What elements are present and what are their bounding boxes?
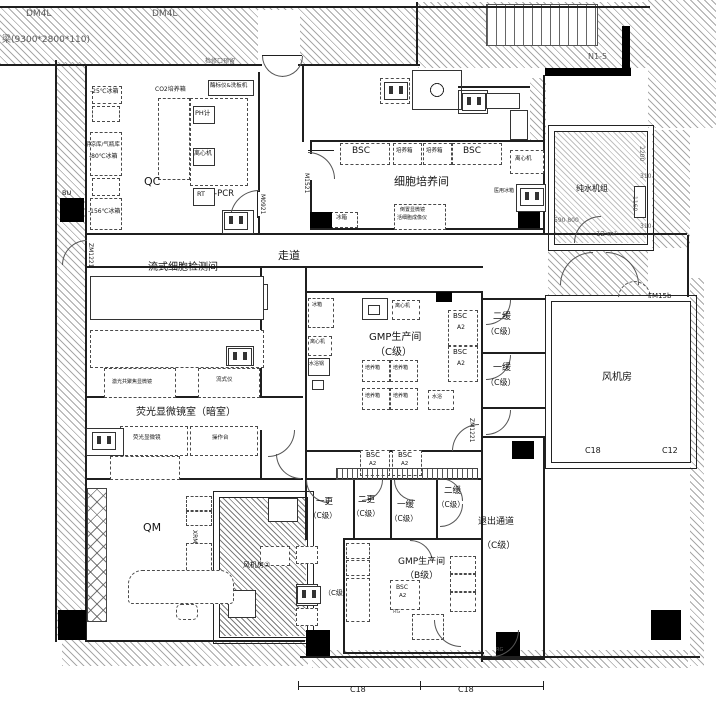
label-grid-c18-c: C18	[458, 686, 474, 694]
label-dim-dm4l-1: DM4L	[26, 10, 51, 19]
label-eq-waterbath-1: 水浴	[432, 395, 442, 400]
door-swing	[308, 152, 335, 179]
label-eq-fridge-2: 冰箱	[312, 303, 322, 308]
label-room-gmp-c: GMP生产间	[369, 333, 421, 343]
wall-segment	[436, 480, 438, 538]
equipment-box	[346, 560, 370, 576]
label-eq-bsc-2: BSC	[463, 147, 481, 156]
label-door-m0921: M0921	[259, 194, 265, 214]
door-swing	[394, 480, 415, 501]
wall-segment	[458, 86, 530, 88]
equipment-box	[92, 178, 120, 196]
equipment-box	[450, 556, 476, 574]
label-door-zm1221-right: ZM1221	[468, 418, 474, 443]
fixture-box	[312, 380, 324, 390]
label-eq-centrifuge-3: 离心机	[395, 304, 410, 309]
structural-column	[651, 610, 681, 640]
door-swing	[262, 56, 283, 77]
label-grid-c12: C12	[662, 447, 678, 455]
label-eq-live-cell: 活细胞成像仪	[397, 216, 427, 221]
label-label-xrm: XRM	[191, 530, 197, 543]
equipment-box	[346, 543, 370, 559]
label-dim-area: 12 m²	[596, 231, 617, 238]
wall-segment	[260, 430, 262, 480]
office-desk	[128, 570, 234, 604]
label-eq-bsc-6: BSC	[366, 452, 380, 459]
label-door-zm1221-left: ZM1221	[87, 243, 93, 268]
label-eq-incubator-5: 培养箱	[365, 394, 380, 399]
wall-segment	[300, 656, 700, 658]
label-eq-bsc-3-a2: A2	[457, 325, 465, 331]
label-eq-incubator-1: 培养箱	[396, 149, 413, 155]
label-room-water-unit: 纯水机组	[576, 185, 608, 193]
wall-segment	[302, 66, 304, 142]
label-eq-fridge-1: 冰箱	[336, 216, 347, 222]
label-room-change2-grade: （C级）	[352, 510, 380, 518]
wall-segment	[298, 681, 299, 690]
structural-column	[622, 26, 630, 76]
label-eq-bsc-5-a2: A2	[399, 594, 406, 600]
label-room-qc: QC	[144, 176, 160, 187]
label-stair-n1-5: N1-5	[588, 53, 607, 61]
label-eq-bsc-4: BSC	[453, 349, 467, 356]
wall-segment	[483, 658, 545, 660]
storage-rack	[87, 488, 107, 622]
label-col-bu: BU	[62, 190, 71, 197]
label-dim-310-a: 310	[640, 174, 651, 180]
label-eq-incubator-3: 培养箱	[365, 366, 380, 371]
wall-segment	[483, 352, 545, 354]
wall-segment	[55, 60, 57, 642]
label-room-airlock2: 二缓	[444, 487, 461, 496]
label-note-access: 检修口预留	[205, 59, 235, 65]
label-door-m1521: M1521	[303, 173, 309, 193]
fixture-box	[90, 276, 264, 320]
equipment-box	[186, 511, 212, 526]
label-eq-flow-cytometer: 流式仪	[216, 378, 233, 384]
equipment-box	[296, 608, 318, 626]
label-room-c-grade-b: （C级）	[324, 590, 350, 597]
structural-column	[518, 212, 540, 228]
label-dim-2200: 2200	[638, 146, 644, 161]
air-grille	[336, 468, 478, 480]
label-door-fm15b: FM15b	[648, 293, 671, 300]
staircase	[486, 4, 598, 46]
label-room-airlock2-grade: （C级）	[437, 501, 465, 509]
label-eq-pcr: -PCR	[214, 190, 234, 199]
label-dim-beam: 梁(9300*2800*110)	[2, 36, 90, 45]
label-dim-310-b: 310	[640, 224, 651, 230]
label-room-buffer1: 一缓	[493, 364, 511, 373]
equipment-box	[110, 456, 180, 480]
office-chair	[176, 604, 198, 620]
wall-segment	[416, 2, 418, 64]
wall-segment	[343, 652, 484, 654]
label-corridor: 走道	[278, 250, 300, 261]
label-room-buffer2: 二缓	[493, 313, 511, 322]
equipment-box	[186, 496, 212, 511]
wall-segment	[483, 436, 545, 438]
label-eq-bsc-7: BSC	[398, 452, 412, 459]
wall-segment	[298, 64, 420, 66]
label-room-fan-2: 风机房②	[243, 562, 270, 569]
equipment-box	[362, 388, 390, 410]
wall-segment	[543, 681, 544, 690]
equipment-box	[296, 546, 318, 564]
fixture-box	[510, 110, 528, 140]
wall-hatch	[55, 62, 85, 470]
door-swing	[486, 410, 511, 435]
label-dim-dm4l-2: DM4L	[152, 10, 177, 19]
label-room-buffer2-grade: （C级）	[486, 328, 516, 336]
label-room-fluorescence: 荧光显微镜室（暗室）	[136, 408, 236, 418]
label-room-change1: 一更	[316, 498, 333, 507]
label-room-qm: QM	[143, 522, 161, 533]
ceiling-diffuser	[412, 70, 462, 110]
structural-column	[60, 198, 84, 222]
wall-hatch	[648, 0, 716, 128]
label-eq-bsc-1: BSC	[352, 147, 370, 156]
label-room-airlock1-grade: （C级）	[390, 515, 418, 523]
door-swing	[268, 430, 295, 457]
label-eq-incubator-6: 培养箱	[393, 394, 408, 399]
wall-segment	[310, 140, 545, 142]
wall-segment	[481, 291, 483, 662]
label-eq-ph: PH计	[195, 110, 210, 117]
structural-column	[306, 630, 330, 656]
door-swing	[276, 454, 301, 479]
fixture-box	[268, 498, 298, 522]
label-eq-coolroom: 阴凉库/气瓶库	[85, 143, 120, 149]
label-grid-c18-a: C18	[585, 447, 601, 455]
sink-icon	[384, 82, 408, 100]
sink-icon	[520, 188, 544, 206]
wall-segment	[305, 291, 307, 452]
wall-segment	[0, 6, 650, 8]
label-room-gmp-b-grade: （B级）	[405, 572, 438, 581]
wall-segment	[483, 407, 545, 409]
wall-segment	[543, 438, 545, 660]
label-mark-rg-2: RG	[496, 648, 503, 653]
label-eq-f25: -25℃冰箱	[90, 89, 119, 95]
label-room-cell-culture: 细胞培养间	[394, 176, 449, 187]
structural-column	[310, 212, 332, 228]
wall-segment	[390, 480, 392, 538]
label-eq-plate-reader: 酶标仪&洗板机	[210, 84, 247, 90]
sink-icon	[462, 93, 486, 111]
label-room-gmp-c-grade: （C级）	[375, 348, 412, 358]
label-room-exit-corridor: 退出通道	[478, 518, 514, 527]
label-eq-f156: -156℃冰箱	[88, 209, 120, 215]
wall-segment	[308, 150, 334, 151]
equipment-box	[92, 106, 120, 122]
wall-segment	[85, 266, 483, 268]
wall-segment	[687, 235, 689, 297]
label-mark-rg-1: RG	[393, 610, 400, 615]
label-room-exit-grade: （C级）	[482, 542, 515, 551]
label-eq-centrifuge-1: 离心机	[194, 151, 212, 157]
equipment-box	[362, 360, 390, 382]
label-grid-c18-b: C18	[350, 686, 366, 694]
label-eq-confocal: 激光共聚焦显微镜	[112, 380, 152, 385]
fixture-box	[368, 305, 380, 315]
label-eq-f80: -80℃冰箱	[89, 154, 118, 160]
label-eq-centrifuge-4: 离心机	[310, 340, 325, 345]
structural-column	[545, 68, 631, 76]
label-eq-rt: RT	[197, 191, 205, 198]
equipment-box	[450, 592, 476, 612]
label-eq-co2: CO2培养箱	[155, 87, 186, 93]
label-eq-fluor-scope: 荧光显微镜	[133, 436, 161, 442]
sink-icon	[224, 212, 248, 230]
label-room-change1-grade: （C级）	[309, 512, 337, 520]
door-swing	[282, 56, 303, 77]
equipment-box	[428, 390, 454, 410]
wall-segment	[258, 72, 260, 192]
equipment-box	[390, 360, 418, 382]
label-room-buffer1-grade: （C级）	[486, 379, 516, 387]
label-room-gmp-b: GMP生产间	[398, 558, 445, 567]
label-room-airlock1: 一缓	[397, 501, 414, 510]
label-eq-bsc-3: BSC	[453, 313, 467, 320]
label-eq-bsc-4-a2: A2	[457, 361, 465, 367]
wall-hatch	[652, 130, 690, 248]
label-eq-bsc-7-a2: A2	[401, 462, 408, 468]
equipment-box	[390, 388, 418, 410]
structural-column	[58, 610, 86, 640]
label-room-change2: 二更	[358, 496, 375, 505]
sink-icon	[297, 586, 321, 604]
label-dim-590-800: 590 800	[554, 218, 579, 224]
label-eq-incubator-4: 培养箱	[393, 366, 408, 371]
label-eq-med-fridge: 医用冰箱	[494, 189, 514, 194]
fixture-box	[486, 93, 520, 109]
label-dim-1160: 1160	[631, 196, 637, 211]
door-swing	[434, 620, 461, 647]
label-eq-bsc-5: BSC	[396, 585, 408, 591]
wall-segment	[305, 268, 307, 291]
label-eq-bench-1: 操作台	[212, 436, 229, 442]
wall-segment	[305, 291, 483, 293]
label-eq-inverted-scope: 倒置显微镜	[400, 208, 425, 213]
label-eq-bsc-6-a2: A2	[369, 462, 376, 468]
equipment-box	[158, 98, 190, 180]
structural-column	[512, 441, 534, 459]
equipment-box	[450, 574, 476, 592]
label-room-flow: 流式细胞检测间	[148, 263, 218, 273]
sink-icon	[92, 432, 116, 450]
label-eq-incubator-2: 培养箱	[426, 149, 443, 155]
label-room-fan-1: 风机房	[602, 373, 632, 383]
label-eq-waterbath-2: 水浴锅	[309, 362, 324, 367]
floor-plan: DM4LDM4L梁(9300*2800*110)N1-5检修口预留QC-25℃冰…	[0, 0, 716, 713]
equipment-box	[346, 578, 370, 622]
wall-segment	[298, 686, 544, 687]
wall-segment	[420, 681, 421, 690]
sink-icon	[228, 348, 252, 366]
label-eq-centrifuge-2: 离心机	[515, 157, 532, 163]
structural-column	[436, 292, 452, 302]
